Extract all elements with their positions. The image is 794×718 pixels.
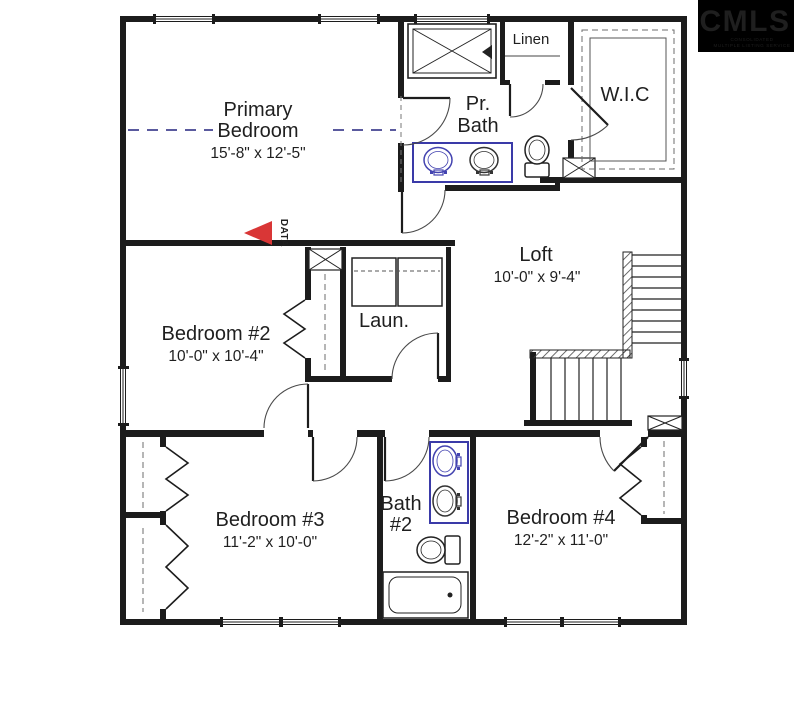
wall-b3closet-right-c (160, 609, 166, 619)
pr-bath-label-line1: Pr. (466, 93, 490, 115)
wall-wic-left-upper (568, 22, 574, 85)
wall-hall-d (429, 430, 600, 437)
wall-right (681, 16, 687, 625)
bedroom3-dims: 11'-2" x 10'-0" (223, 534, 317, 551)
wall-hall-b (308, 430, 313, 437)
bedroom3-bifold-upper (166, 447, 188, 511)
wall-hall-e (648, 430, 687, 437)
wall-b3closet-divider (126, 512, 162, 518)
floor-plan-page: Primary Bedroom 15'-8" x 12'-5" Pr. Bath… (0, 0, 794, 718)
bath2-label-line1: Bath (380, 493, 421, 515)
bedroom4-label: Bedroom #4 (507, 507, 616, 529)
wall-bath2-left (377, 437, 383, 619)
bedroom3-closets (143, 442, 188, 612)
wall-hall-c (357, 430, 385, 437)
window-primary-2 (318, 14, 380, 24)
floor-plan-drawing: Primary Bedroom 15'-8" x 12'-5" Pr. Bath… (0, 0, 794, 718)
wall-b3closet-right-a (160, 437, 166, 447)
door-bedroom3 (313, 437, 357, 481)
window-bedroom2-left (118, 366, 129, 426)
wall-bath-bottom (445, 185, 560, 191)
logo-tagline-1: CONSOLIDATED (730, 37, 773, 42)
wall-stair-left (530, 352, 536, 422)
primary-bedroom-label-line1: Primary (224, 99, 293, 121)
window-primary-1 (153, 14, 215, 24)
bedroom2-bifold-door (284, 300, 305, 358)
wall-linen-bottom-a (500, 80, 510, 85)
logo-text: CMLS (700, 5, 791, 38)
door-primary-bath (403, 98, 450, 145)
primary-vanity (413, 143, 512, 182)
stair-stringer-horizontal (530, 350, 630, 358)
wall-linen-bottom-b (545, 80, 560, 85)
stair-stringer-vertical (623, 252, 632, 358)
wall-primary-bath-upper (398, 22, 404, 98)
pr-bath-label-line2: Bath (457, 115, 498, 137)
window-shower (414, 14, 490, 24)
stair-treads-upper-flight (632, 255, 681, 343)
wall-laundry-bottom-b (438, 376, 451, 382)
bedroom3-bifold-lower (166, 525, 188, 609)
bedroom2-closet (284, 249, 342, 374)
washer (352, 258, 396, 306)
wic-label: W.I.C (601, 84, 650, 106)
window-stair-landing (679, 358, 689, 399)
door-bath2 (385, 437, 429, 481)
wall-step-joint (555, 177, 560, 191)
bath2-label-line2: #2 (390, 514, 412, 536)
door-laundry (392, 333, 438, 379)
bath2-tub (383, 572, 468, 618)
window-bedroom4-double (504, 617, 621, 627)
primary-bedroom-dims: 15'-8" x 12'-5" (210, 145, 305, 162)
wall-laundry-bottom-a (305, 376, 392, 382)
wall-wic-bottom (540, 177, 687, 183)
bedroom2-dims: 10'-0" x 10'-4" (168, 348, 263, 365)
laundry-label: Laun. (359, 310, 409, 332)
wall-hall-a (120, 430, 264, 437)
wall-bath2-right (470, 437, 476, 619)
door-bedroom4 (600, 437, 648, 471)
dryer (398, 258, 442, 306)
wall-b4closet-bottom (641, 518, 687, 524)
bath2-vanity (430, 442, 468, 523)
shower (408, 24, 496, 78)
logo-tagline-2: MULTIPLE LISTING SERVICE (713, 43, 790, 48)
door-bedroom2 (264, 384, 308, 428)
wall-stair-bottom (524, 420, 632, 426)
primary-bedroom-label-line2: Bedroom (217, 120, 298, 142)
primary-toilet (525, 136, 549, 177)
linen-label: Linen (513, 31, 550, 48)
stair-treads-lower-flight (551, 358, 621, 420)
door-linen (510, 84, 543, 117)
door-primary-bedroom (402, 190, 445, 233)
wall-left (120, 16, 126, 625)
window-bedroom3-double (220, 617, 341, 627)
wall-laundry-right (446, 247, 451, 382)
bedroom4-bifold-door (620, 447, 641, 515)
shower-head-icon (482, 45, 492, 59)
loft-label: Loft (519, 244, 553, 266)
cmls-logo: CMLS CONSOLIDATED MULTIPLE LISTING SERVI… (698, 0, 794, 52)
room-labels: Primary Bedroom 15'-8" x 12'-5" Pr. Bath… (162, 31, 650, 551)
bedroom2-label: Bedroom #2 (162, 323, 271, 345)
bedroom3-label: Bedroom #3 (216, 509, 325, 531)
washer-dryer (352, 258, 442, 306)
loft-dims: 10'-0" x 9'-4" (494, 269, 581, 286)
bath2-toilet (417, 536, 460, 564)
data-marker-label: DATA (278, 219, 289, 247)
wall-linen-left (500, 22, 505, 80)
bedroom4-dims: 12'-2" x 11'-0" (514, 532, 608, 549)
